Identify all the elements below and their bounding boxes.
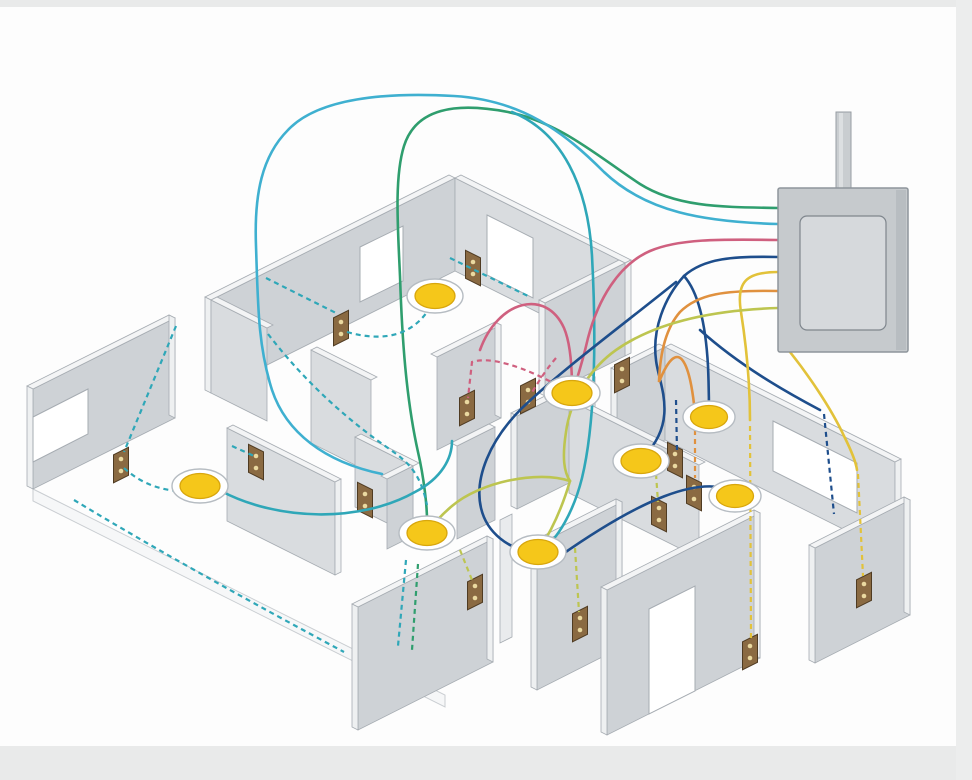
- switch-b-dot-bottom: [620, 379, 625, 384]
- corridor-wall-b-end-left: [511, 413, 517, 509]
- wall-a-nw-end: [205, 297, 211, 393]
- outlet-i-dot-top: [473, 584, 478, 589]
- outlet-e-dot-top: [526, 388, 531, 393]
- switch-b-dot-top: [620, 367, 625, 372]
- outlet-k-dot-top: [578, 616, 583, 621]
- light-1-bulb: [415, 284, 455, 309]
- light-2-bulb: [180, 474, 220, 499]
- outlet-j-dot-bottom: [363, 504, 368, 509]
- wall-right-front-end-right: [904, 497, 910, 615]
- front-wall-left-end-left: [352, 604, 358, 730]
- light-8-bulb: [518, 540, 558, 565]
- light-4-bulb: [621, 449, 661, 474]
- service-conduit-highlight: [839, 113, 843, 191]
- wall-left-ext-face: [33, 318, 175, 489]
- outlet-b-body: [114, 447, 129, 483]
- outlet-f-dot-top: [657, 506, 662, 511]
- switch-d-dot-bottom: [692, 497, 697, 502]
- light-7-bulb: [407, 521, 447, 546]
- outlet-j-dot-top: [363, 492, 368, 497]
- outlet-c-dot-top: [254, 454, 259, 459]
- outlet-d-dot-bottom: [465, 412, 470, 417]
- breaker-panel-door: [800, 216, 886, 330]
- light-5-bulb: [691, 406, 728, 429]
- wall-left-inner-end: [335, 479, 341, 575]
- outlet-h-dot-bottom: [862, 594, 867, 599]
- frame-band-top: [0, 0, 972, 7]
- service-conduit: [836, 112, 851, 192]
- outlet-a-dot-top: [339, 320, 344, 325]
- outlet-h-dot-top: [862, 582, 867, 587]
- outlet-b-dot-bottom: [119, 469, 124, 474]
- frame-band-bottom: [0, 746, 972, 780]
- switch-c-dot-top: [673, 452, 678, 457]
- thin-partition: [500, 514, 512, 643]
- wiring-diagram-stage: [0, 0, 972, 780]
- front-wall-right-end-left: [601, 587, 607, 735]
- outlet-f-dot-bottom: [657, 518, 662, 523]
- outlet-a-dot-bottom: [339, 332, 344, 337]
- outlet-k-dot-bottom: [578, 628, 583, 633]
- switch-a-dot-bottom: [471, 272, 476, 277]
- switch-a-dot-top: [471, 260, 476, 265]
- outlet-b-dot-top: [119, 457, 124, 462]
- wall-right-front-end-left: [809, 545, 815, 663]
- switch-c-dot-bottom: [673, 464, 678, 469]
- wall-left-ext-end-left: [27, 386, 33, 489]
- outlet-g-dot-bottom: [748, 656, 753, 661]
- outlet-d-dot-top: [465, 400, 470, 405]
- frame-band-right: [956, 0, 972, 780]
- front-wall-right-door: [649, 586, 695, 714]
- outlet-g-dot-top: [748, 644, 753, 649]
- light-3-bulb: [552, 381, 592, 406]
- breaker-panel-shade: [896, 190, 906, 350]
- outlet-i-dot-bottom: [473, 596, 478, 601]
- front-wall-left-end-right: [487, 536, 493, 662]
- wall-mid-b-end: [495, 322, 501, 418]
- light-6-bulb: [717, 485, 754, 508]
- outlet-c-dot-bottom: [254, 466, 259, 471]
- home-electrical-wiring-isometric-diagram: [0, 0, 972, 780]
- corridor-wall-c-face: [457, 427, 495, 539]
